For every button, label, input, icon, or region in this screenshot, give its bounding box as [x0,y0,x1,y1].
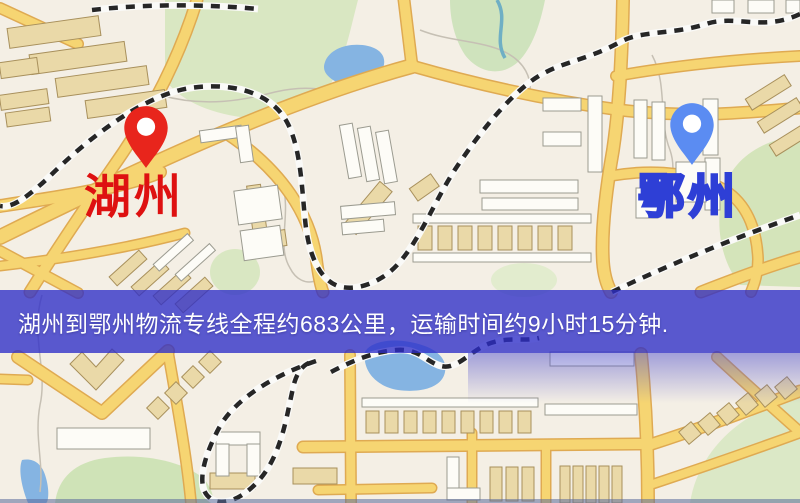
red-pin-icon [123,105,169,169]
map-canvas [0,0,800,503]
map-screenshot: 湖州 鄂州 湖州到鄂州物流专线全程约683公里，运输时间约9小时15分钟. [0,0,800,503]
route-banner: 湖州到鄂州物流专线全程约683公里，运输时间约9小时15分钟. [0,290,800,353]
map-bottom-edge [0,499,800,503]
destination-pin [668,102,716,166]
origin-city-label: 湖州 [84,175,184,222]
blue-pin-icon [668,102,716,166]
route-banner-text: 湖州到鄂州物流专线全程约683公里，运输时间约9小时15分钟. [0,305,669,339]
destination-city-label: 鄂州 [638,175,738,222]
origin-pin [123,105,169,169]
banner-shadow-wash [468,353,800,403]
